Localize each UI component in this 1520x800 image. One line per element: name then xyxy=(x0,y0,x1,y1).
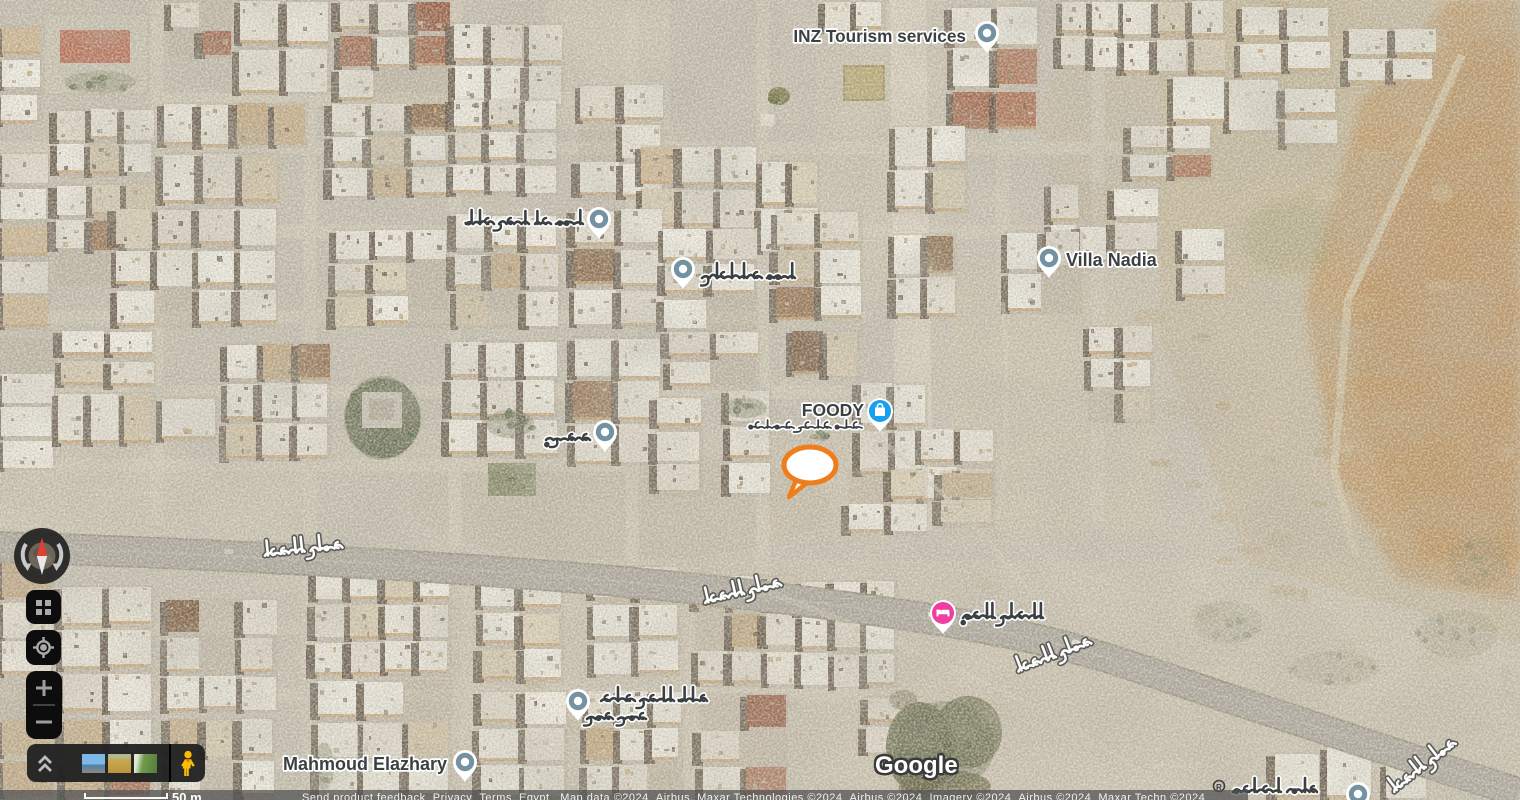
svg-text:Villa Nadia: Villa Nadia xyxy=(1066,250,1158,270)
svg-text:INZ Tourism services: INZ Tourism services xyxy=(793,26,966,46)
svg-text:Mahmoud Elazhary: Mahmoud Elazhary xyxy=(283,754,447,774)
svg-text:FOODY: FOODY xyxy=(802,400,865,420)
